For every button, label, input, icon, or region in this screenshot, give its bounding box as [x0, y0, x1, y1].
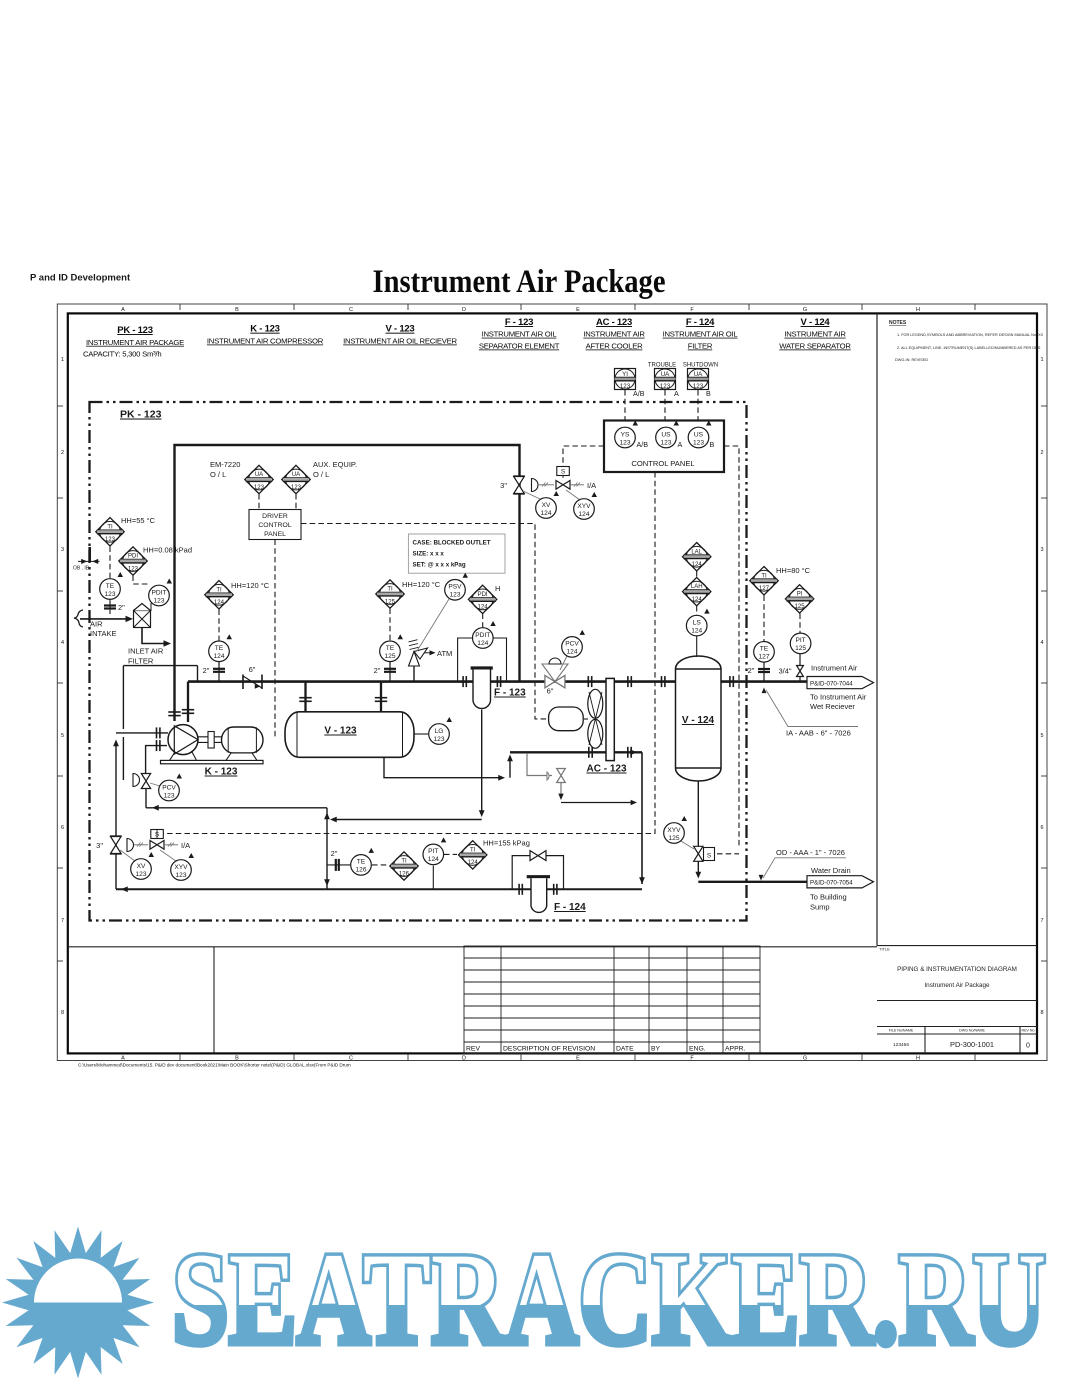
svg-text:HH=0.08 kPad: HH=0.08 kPad: [143, 546, 192, 555]
svg-text:124: 124: [478, 604, 489, 611]
svg-text:EM-7220: EM-7220: [210, 460, 240, 469]
svg-text:PDI: PDI: [478, 592, 488, 598]
svg-text:123: 123: [175, 872, 186, 879]
svg-text:123: 123: [153, 597, 164, 604]
svg-text:PIT: PIT: [795, 637, 805, 644]
svg-text:2. ALL EQUIPMENT, LINE, INSTRU: 2. ALL EQUIPMENT, LINE, INSTRUMENT(S) LA…: [897, 346, 1041, 350]
svg-text:P&ID-070-7044: P&ID-070-7044: [810, 680, 853, 687]
svg-text:G: G: [803, 307, 807, 313]
svg-text:ENG.: ENG.: [689, 1046, 706, 1053]
svg-text:H: H: [916, 1056, 920, 1062]
svg-text:PDIT: PDIT: [475, 632, 490, 639]
svg-text:SHUTDOWN: SHUTDOWN: [683, 363, 718, 369]
svg-text:123: 123: [660, 383, 671, 390]
svg-text:V - 124: V - 124: [682, 715, 715, 726]
svg-text:3: 3: [61, 547, 64, 553]
svg-text:7: 7: [61, 918, 64, 924]
svg-text:126: 126: [399, 870, 410, 877]
svg-text:A: A: [121, 1056, 125, 1062]
svg-text:INSTRUMENT AIR OIL RECIEVER: INSTRUMENT AIR OIL RECIEVER: [343, 337, 457, 346]
svg-text:1: 1: [1040, 357, 1043, 363]
svg-text:V - 123: V - 123: [324, 726, 357, 737]
svg-text:UA: UA: [292, 472, 300, 478]
svg-text:HH=120 °C: HH=120 °C: [231, 581, 270, 590]
svg-text:XYV: XYV: [577, 503, 591, 510]
svg-text:TI: TI: [401, 859, 407, 865]
svg-text:H: H: [495, 584, 500, 593]
svg-text:123: 123: [660, 439, 671, 446]
svg-text:125: 125: [795, 603, 806, 610]
svg-text:FILE No/NAME: FILE No/NAME: [889, 1029, 914, 1033]
svg-text:124: 124: [477, 640, 488, 647]
svg-text:CASE: BLOCKED OUTLET: CASE: BLOCKED OUTLET: [413, 540, 491, 547]
svg-text:2: 2: [1040, 450, 1043, 456]
svg-text:PI: PI: [797, 592, 803, 598]
svg-text:124: 124: [428, 856, 439, 863]
svg-text:OD - AAA - 1" - 7026: OD - AAA - 1" - 7026: [776, 848, 845, 857]
svg-text:DWG-IN: REVISED: DWG-IN: REVISED: [895, 358, 928, 362]
svg-text:G: G: [803, 1056, 807, 1062]
svg-text:DATE: DATE: [616, 1046, 634, 1053]
svg-text:124: 124: [691, 627, 702, 634]
svg-text:LG: LG: [435, 728, 444, 735]
svg-text:125: 125: [385, 598, 396, 605]
svg-text:8: 8: [1040, 1010, 1043, 1016]
svg-text:DESCRIPTION OF REVISION: DESCRIPTION OF REVISION: [503, 1046, 595, 1053]
svg-text:PCV: PCV: [162, 784, 176, 791]
svg-text:124: 124: [692, 561, 703, 568]
svg-text:2": 2": [374, 666, 381, 675]
svg-text:CONTROL PANEL: CONTROL PANEL: [631, 459, 694, 468]
svg-text:O / L: O / L: [210, 470, 226, 479]
svg-text:S: S: [707, 853, 712, 860]
svg-text:UA: UA: [255, 472, 263, 478]
svg-text:TITLE: TITLE: [879, 947, 890, 952]
svg-text:S: S: [561, 469, 566, 476]
svg-text:F - 124: F - 124: [686, 317, 715, 328]
svg-text:124: 124: [213, 653, 224, 660]
svg-text:4: 4: [61, 640, 64, 646]
svg-text:AC - 123: AC - 123: [596, 317, 632, 328]
svg-text:123: 123: [128, 565, 139, 572]
svg-text:PIPING & INSTRUMENTATION DIAGR: PIPING & INSTRUMENTATION DIAGRAM: [897, 966, 1017, 973]
svg-text:CONTROL: CONTROL: [258, 522, 291, 529]
svg-text:F - 123: F - 123: [505, 317, 533, 328]
svg-text:5: 5: [1040, 733, 1043, 739]
svg-text:To Building: To Building: [810, 893, 847, 902]
svg-text:INSTRUMENT AIR OIL: INSTRUMENT AIR OIL: [663, 330, 739, 339]
svg-text:6": 6": [249, 665, 256, 674]
svg-text:123: 123: [620, 383, 631, 390]
svg-text:AFTER COOLER: AFTER COOLER: [586, 342, 643, 351]
svg-text:FILTER: FILTER: [688, 342, 713, 351]
svg-text:B: B: [710, 440, 715, 449]
svg-text:HH=155 kPag: HH=155 kPag: [483, 839, 530, 848]
svg-text:PD-300-1001: PD-300-1001: [950, 1040, 994, 1049]
svg-text:2": 2": [118, 603, 125, 612]
svg-text:INSTRUMENT AIR OIL: INSTRUMENT AIR OIL: [482, 330, 558, 339]
svg-text:3: 3: [1040, 547, 1043, 553]
svg-text:123: 123: [433, 736, 444, 743]
svg-text:DRIVER: DRIVER: [262, 513, 288, 520]
svg-text:UA: UA: [694, 371, 703, 378]
svg-text:TI: TI: [761, 573, 767, 579]
svg-text:PK - 123: PK - 123: [117, 325, 153, 336]
svg-text:K - 123: K - 123: [250, 324, 279, 335]
svg-text:123: 123: [291, 484, 302, 491]
svg-text:Instrument Air Package: Instrument Air Package: [924, 982, 990, 989]
svg-text:1: 1: [61, 357, 64, 363]
svg-text:123: 123: [693, 439, 704, 446]
svg-text:F - 123: F - 123: [494, 688, 526, 699]
svg-text:ATM: ATM: [437, 649, 452, 658]
svg-text:B: B: [235, 307, 239, 313]
svg-text:AUX. EQUIP.: AUX. EQUIP.: [313, 460, 357, 469]
svg-text:A: A: [678, 440, 683, 449]
svg-text:PANEL: PANEL: [264, 531, 286, 538]
svg-text:TE: TE: [106, 583, 115, 590]
svg-text:127: 127: [758, 654, 769, 661]
svg-text:P and ID Development: P and ID Development: [30, 273, 131, 284]
svg-text:UA: UA: [661, 371, 670, 378]
svg-text:LAL: LAL: [691, 549, 702, 555]
svg-text:FILTER: FILTER: [128, 657, 154, 666]
svg-text:YI: YI: [622, 371, 628, 378]
svg-text:3": 3": [96, 841, 103, 850]
svg-text:2: 2: [61, 450, 64, 456]
svg-text:123: 123: [135, 871, 146, 878]
svg-text:PSV: PSV: [448, 584, 462, 591]
svg-text:D: D: [462, 307, 466, 313]
svg-text:127: 127: [759, 585, 770, 592]
svg-text:PIT: PIT: [428, 848, 438, 855]
svg-text:B: B: [235, 1056, 239, 1062]
svg-text:TI: TI: [216, 587, 222, 593]
svg-text:E: E: [576, 307, 580, 313]
svg-text:2": 2": [748, 666, 755, 675]
svg-text:124: 124: [692, 596, 703, 603]
svg-text:A: A: [674, 389, 679, 398]
svg-text:124: 124: [578, 511, 589, 518]
svg-text:REV: REV: [466, 1046, 480, 1053]
svg-text:I/A: I/A: [181, 841, 190, 850]
svg-text:P&ID-070-7054: P&ID-070-7054: [810, 880, 853, 887]
svg-text:123: 123: [449, 592, 460, 599]
svg-text:6: 6: [1040, 825, 1043, 831]
svg-text:YS: YS: [621, 431, 630, 438]
svg-text:1. FOR LEGEND,SYMBOLS AND ABBR: 1. FOR LEGEND,SYMBOLS AND ABBREVIATION, …: [897, 333, 1044, 337]
svg-text:8: 8: [61, 1010, 64, 1016]
svg-text:TE: TE: [215, 645, 224, 652]
svg-text:TI: TI: [107, 524, 113, 530]
svg-text:V - 124: V - 124: [801, 317, 831, 328]
svg-text:INSTRUMENT AIR COMPRESSOR: INSTRUMENT AIR COMPRESSOR: [207, 337, 324, 346]
svg-text:XV: XV: [137, 863, 146, 870]
svg-text:TE: TE: [386, 645, 395, 652]
svg-text:INSTRUMENT AIR: INSTRUMENT AIR: [583, 330, 645, 339]
svg-text:TE: TE: [357, 859, 366, 866]
svg-text:A/B: A/B: [633, 389, 645, 398]
svg-text:Water Drain: Water Drain: [811, 866, 851, 875]
svg-text:CAPACITY: 5,300 Sm³/h: CAPACITY: 5,300 Sm³/h: [83, 350, 161, 359]
svg-text:124: 124: [540, 510, 551, 517]
svg-text:APPR.: APPR.: [725, 1046, 746, 1053]
svg-text:PK - 123: PK - 123: [120, 409, 162, 421]
svg-text:TE: TE: [760, 646, 769, 653]
svg-text:Instrument Air: Instrument Air: [811, 664, 858, 673]
svg-text:INLET AIR: INLET AIR: [128, 647, 164, 656]
svg-text:123: 123: [163, 792, 174, 799]
svg-text:124: 124: [566, 649, 577, 656]
svg-text:0: 0: [1026, 1043, 1030, 1050]
svg-text:HH=55 °C: HH=55 °C: [121, 516, 156, 525]
svg-text:AIR: AIR: [90, 620, 103, 629]
svg-text:K - 123: K - 123: [205, 767, 238, 778]
svg-text:XV: XV: [542, 502, 551, 509]
svg-text:NOTES: NOTES: [889, 320, 907, 326]
svg-text:IA - AAB - 6" - 7026: IA - AAB - 6" - 7026: [786, 729, 851, 738]
svg-text:BY: BY: [651, 1046, 661, 1053]
svg-text:INSTRUMENT AIR PACKAGE: INSTRUMENT AIR PACKAGE: [86, 338, 184, 347]
svg-text:123: 123: [619, 439, 630, 446]
svg-text:5: 5: [61, 733, 64, 739]
svg-text:124: 124: [468, 859, 479, 866]
svg-text:INSTRUMENT AIR: INSTRUMENT AIR: [784, 330, 846, 339]
svg-text:123: 123: [105, 536, 116, 543]
svg-text:124: 124: [214, 599, 225, 606]
svg-text:C: C: [349, 1056, 353, 1062]
svg-text:6: 6: [61, 825, 64, 831]
svg-text:125: 125: [384, 653, 395, 660]
svg-text:PDI: PDI: [128, 554, 138, 560]
svg-text:2": 2": [331, 849, 338, 858]
svg-text:OB . IB: OB . IB: [73, 566, 90, 572]
svg-text:WATER SEPARATOR: WATER SEPARATOR: [779, 342, 851, 351]
svg-text:LAH: LAH: [691, 584, 703, 590]
svg-text:XYV: XYV: [174, 864, 188, 871]
svg-text:2": 2": [203, 666, 210, 675]
svg-text:D: D: [462, 1056, 466, 1062]
svg-text:C:\Users\Mohammed\Documents\15: C:\Users\Mohammed\Documents\15. P&ID dev…: [78, 1063, 351, 1068]
svg-text:PDIT: PDIT: [151, 589, 166, 596]
svg-text:Instrument Air Package: Instrument Air Package: [373, 264, 666, 300]
svg-text:PCV: PCV: [565, 641, 579, 648]
svg-text:123: 123: [693, 383, 704, 390]
svg-text:XYV: XYV: [667, 827, 681, 834]
svg-text:A: A: [121, 307, 125, 313]
svg-text:SEATRACKER.RU: SEATRACKER.RU: [172, 1225, 1046, 1372]
svg-text:6": 6": [547, 687, 554, 696]
svg-text:E: E: [576, 1056, 580, 1062]
svg-text:H: H: [916, 307, 920, 313]
svg-text:123: 123: [104, 591, 115, 598]
svg-text:126: 126: [355, 867, 366, 874]
svg-text:3/4": 3/4": [778, 667, 791, 676]
svg-text:3": 3": [500, 481, 507, 490]
svg-text:US: US: [694, 431, 704, 438]
svg-text:123456: 123456: [893, 1042, 909, 1048]
svg-text:Wet Reciever: Wet Reciever: [810, 702, 855, 711]
svg-text:125: 125: [795, 645, 806, 652]
svg-text:INTAKE: INTAKE: [90, 629, 117, 638]
svg-text:Sump: Sump: [810, 903, 830, 912]
svg-text:REV No: REV No: [1022, 1029, 1035, 1033]
svg-text:SEPARATOR ELEMENT: SEPARATOR ELEMENT: [479, 342, 560, 351]
svg-text:HH=80 °C: HH=80 °C: [776, 566, 811, 575]
svg-text:7: 7: [1040, 918, 1043, 924]
svg-text:To Instrument Air: To Instrument Air: [810, 692, 867, 701]
svg-text:US: US: [661, 431, 671, 438]
svg-text:TI: TI: [387, 587, 393, 593]
svg-text:TROUBLE: TROUBLE: [648, 363, 676, 369]
svg-text:125: 125: [668, 835, 679, 842]
svg-text:C: C: [349, 307, 353, 313]
svg-text:SIZE: x x x: SIZE: x x x: [413, 551, 445, 558]
svg-text:AC - 123: AC - 123: [586, 764, 626, 775]
svg-text:F - 124: F - 124: [554, 902, 586, 913]
svg-text:A/B: A/B: [637, 440, 649, 449]
svg-text:I/A: I/A: [587, 481, 596, 490]
svg-text:B: B: [706, 389, 711, 398]
svg-text:DWG No/NAME: DWG No/NAME: [959, 1029, 985, 1033]
svg-text:SET: @ x x x kPag: SET: @ x x x kPag: [413, 562, 466, 569]
svg-text:HH=120 °C: HH=120 °C: [402, 580, 441, 589]
svg-text:TI: TI: [470, 848, 476, 854]
svg-text:4: 4: [1040, 640, 1043, 646]
svg-text:LS: LS: [693, 619, 702, 626]
svg-text:V - 123: V - 123: [386, 324, 415, 335]
svg-text:O / L: O / L: [313, 470, 329, 479]
svg-text:123: 123: [254, 484, 265, 491]
